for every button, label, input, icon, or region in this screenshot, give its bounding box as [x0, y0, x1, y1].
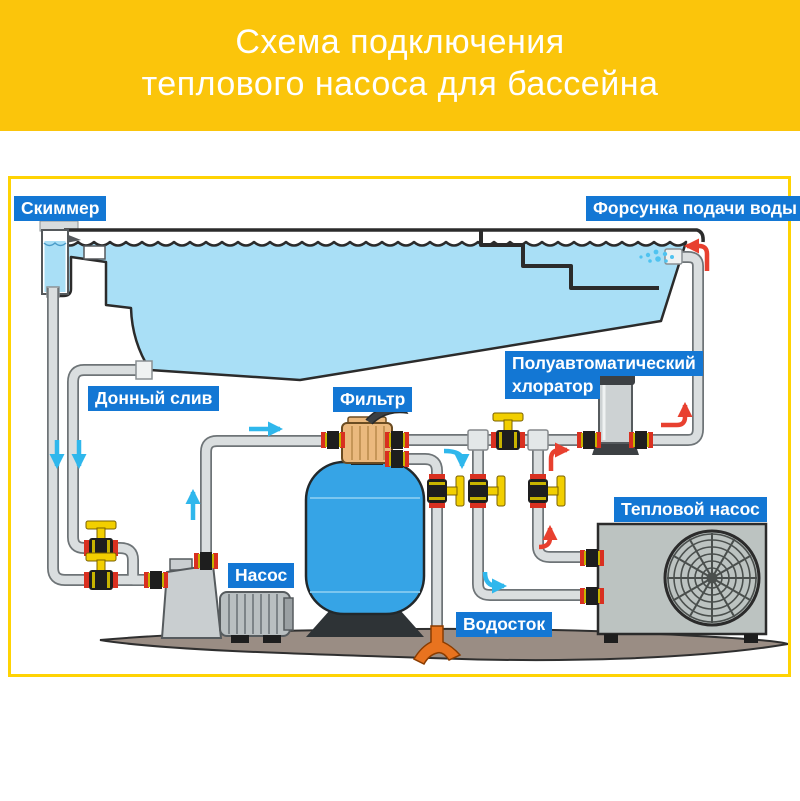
tee-fitting — [528, 430, 548, 450]
diagram-frame — [8, 176, 791, 677]
label-pump: Насос — [228, 563, 294, 588]
main-drain-connector — [136, 361, 152, 379]
valve-bypass — [491, 413, 525, 450]
label-drain: Водосток — [456, 612, 552, 637]
skimmer-weir-wall — [84, 246, 105, 259]
valve-hp-inlet — [468, 474, 505, 508]
valve-drain-line — [84, 521, 118, 558]
label-inlet-nozzle: Форсунка подачи воды — [586, 196, 800, 221]
screenshot-root: Схема подключения теплового насоса для б… — [0, 0, 800, 801]
fan-icon — [665, 531, 759, 625]
title-banner: Схема подключения теплового насоса для б… — [0, 0, 800, 131]
pool-heat-pump-schematic — [11, 179, 788, 674]
page-title-line1: Схема подключения — [0, 0, 800, 63]
page-title-line2: теплового насоса для бассейна — [0, 63, 800, 105]
cold-flow-arrow — [485, 572, 504, 586]
heat-pump-unit — [598, 524, 766, 643]
pump-motor — [220, 592, 290, 636]
label-heat-pump: Тепловой насос — [614, 497, 767, 522]
tee-fitting — [468, 430, 488, 450]
valve-hp-outlet — [528, 474, 565, 508]
cold-flow-arrow — [444, 451, 462, 466]
pool-rim — [64, 230, 703, 242]
label-filter: Фильтр — [333, 387, 412, 412]
valve-backwash — [427, 474, 464, 508]
hot-flow-arrow — [551, 450, 567, 471]
label-skimmer: Скиммер — [14, 196, 106, 221]
skimmer-box — [42, 230, 68, 297]
valve-skimmer-line — [84, 553, 118, 590]
label-bottom-drain: Донный слив — [88, 386, 219, 411]
label-chlorinator-line1: Полуавтоматический — [505, 351, 703, 376]
hot-flow-arrow — [661, 405, 685, 425]
pump-body — [162, 565, 221, 638]
label-chlorinator-line2: хлоратор — [505, 374, 600, 399]
